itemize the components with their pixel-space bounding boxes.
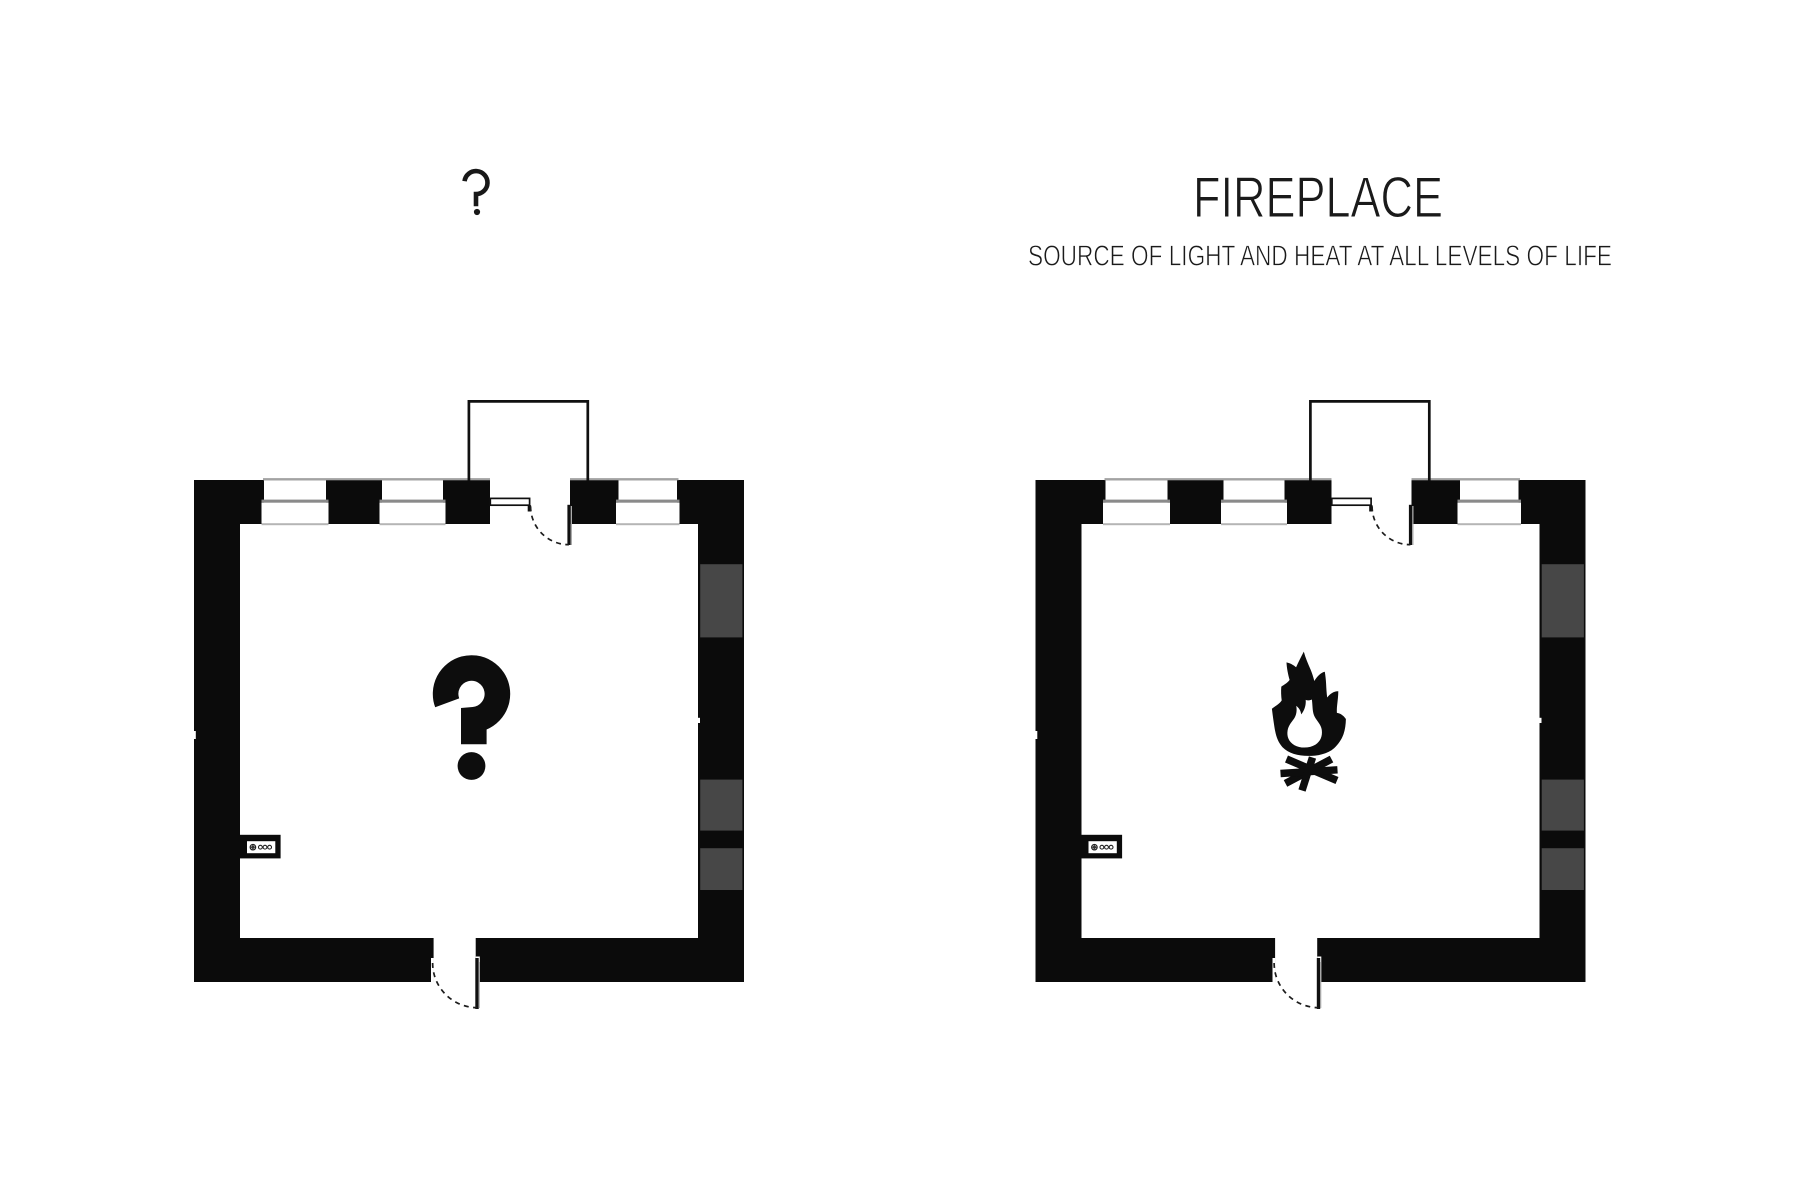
svg-text:FIREPLACE: FIREPLACE <box>1193 166 1443 230</box>
svg-text:SOURCE OF LIGHT AND HEAT AT AL: SOURCE OF LIGHT AND HEAT AT ALL LEVELS O… <box>1028 240 1612 272</box>
